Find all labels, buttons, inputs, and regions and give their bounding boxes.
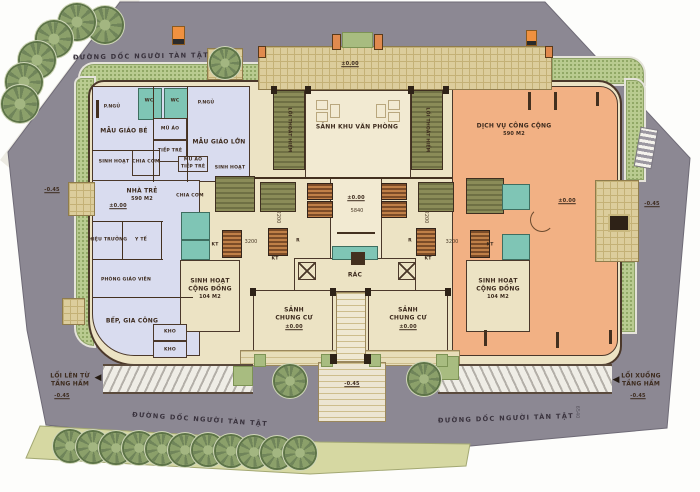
tree-icon <box>409 364 439 394</box>
community-right-line2: CỘNG ĐỒNG <box>476 287 519 294</box>
zone-label-kindergarten-small: MẪU GIÁO BÉ <box>100 129 147 136</box>
room-label-riser-2: R <box>408 238 412 243</box>
skylight-box <box>398 262 416 280</box>
elevator-left-a <box>307 183 333 200</box>
dim-6540-road: 6540 <box>573 406 579 419</box>
vehicle-icon <box>526 30 537 46</box>
lobby-right-line2: CHUNG CƯ <box>389 316 426 323</box>
column-mark <box>330 354 337 364</box>
furniture <box>376 104 386 118</box>
room-label-kitchen: BẾP, GIA CÔNG <box>106 319 158 326</box>
plaza-column <box>545 46 553 58</box>
plaza-column <box>332 34 341 50</box>
dim-3200-left: 3200 <box>245 240 258 246</box>
core-wall <box>250 177 452 179</box>
entry-plaza-top <box>258 46 552 90</box>
room-label-storage-1: KHO <box>164 329 176 334</box>
basement-ramp-left <box>103 364 253 394</box>
furniture <box>330 104 340 118</box>
level-bottom-walk: -0.45 <box>344 382 359 388</box>
arrow-left-icon: ◀ <box>612 375 619 385</box>
column-mark <box>271 86 277 94</box>
room-label-wc-2: WC <box>171 98 180 103</box>
stair-core-left <box>260 182 296 212</box>
stair-right-wing <box>466 178 504 214</box>
column-mark <box>250 288 256 296</box>
tree-icon <box>275 366 305 396</box>
column-mark <box>364 354 371 364</box>
level-corridor: ±0.00 <box>347 196 365 202</box>
green-planter <box>436 354 448 367</box>
community-right-line1: SINH HOẠT <box>478 279 517 286</box>
wall-stub <box>528 92 531 110</box>
elevator-right-b <box>381 201 407 218</box>
tree-icon <box>3 87 37 121</box>
community-left-line1: SINH HOẠT <box>190 279 229 286</box>
lobby-right-level: ±0.00 <box>399 325 417 331</box>
service-elevator-1 <box>222 230 242 258</box>
column-mark <box>365 288 371 296</box>
furniture <box>316 100 328 110</box>
wall-stub <box>96 100 99 118</box>
room-label-meal-1: CHIA CƠM <box>132 159 160 164</box>
zone-label-nursery-area: 590 M2 <box>131 197 153 203</box>
wall-stub <box>596 92 599 106</box>
green-planter <box>254 354 266 367</box>
wall <box>92 150 153 151</box>
wall-stub <box>554 92 557 110</box>
lobby-left-level: ±0.00 <box>285 325 303 331</box>
room-label-bedroom-2: P.NGỦ <box>198 100 215 105</box>
furniture <box>388 112 400 122</box>
room-label-bedroom-1: P.NGỦ <box>104 104 121 109</box>
wc-core-left-a <box>181 212 210 240</box>
room-label-riser-1: R <box>296 238 300 243</box>
wall-stub <box>556 332 559 348</box>
wc-core-right-a <box>502 184 530 210</box>
wall-stub <box>609 330 612 344</box>
zone-label-public-service-area: 590 M2 <box>503 132 525 138</box>
service-elevator-3 <box>416 228 436 256</box>
zone-label-escape-right: LỐI THOÁT HIỂM <box>424 108 429 153</box>
vehicle-icon <box>172 26 185 45</box>
dim-2200-left: 2200 <box>274 211 280 224</box>
basement-up-level: -0.45 <box>54 394 69 400</box>
green-patch <box>233 366 253 386</box>
central-walk-lower <box>318 362 386 422</box>
plaza-column <box>258 46 266 58</box>
column-mark <box>445 288 451 296</box>
wall <box>161 222 162 260</box>
column-mark <box>305 86 311 94</box>
wall <box>93 259 163 260</box>
dim-2200-right: 2200 <box>422 211 428 224</box>
level-nursery: ±0.00 <box>109 204 127 210</box>
lobby-bench <box>337 232 375 234</box>
room-label-hats: MŨ ÁO <box>161 126 179 131</box>
left-edge-planter <box>68 182 95 216</box>
room-label-hats-reception-a: MŨ ÁO <box>184 157 202 162</box>
wc-room-2 <box>164 88 188 120</box>
room-label-medical: Y TẾ <box>135 237 147 242</box>
trash-chute <box>351 252 365 265</box>
room-label-kt-1: KT <box>211 242 218 247</box>
tree-icon <box>285 438 315 468</box>
wall <box>93 221 163 222</box>
elevator-left-b <box>307 201 333 218</box>
column-mark <box>443 86 449 94</box>
room-label-principal: HIỆU TRƯỞNG <box>89 237 127 242</box>
room-label-kt-2: KT <box>271 256 278 261</box>
room-label-hats-reception-b: TIẾP TRẺ <box>181 164 205 169</box>
basement-up-line2: TẦNG HẦM <box>51 382 89 389</box>
basement-down-line2: TẦNG HẦM <box>622 382 660 389</box>
level-right-plaza: -0.45 <box>644 202 659 208</box>
zone-label-public-service: DỊCH VỤ CÔNG CỘNG <box>477 124 552 131</box>
elevator-right-a <box>381 183 407 200</box>
wall-stub <box>484 330 487 346</box>
plaza-feature <box>608 214 630 232</box>
room-label-kt-3: KT <box>424 256 431 261</box>
wc-core-left-b <box>181 240 210 260</box>
room-label-storage-2: KHO <box>164 347 176 352</box>
column-mark <box>408 86 414 94</box>
room-label-child-reception: TIẾP TRẺ <box>158 148 182 153</box>
wc-room-1 <box>138 88 162 120</box>
furniture <box>316 112 328 122</box>
basement-down-level: -0.45 <box>630 394 645 400</box>
level-left-sidewalk: -0.45 <box>44 188 59 194</box>
stair-left-wing <box>215 176 255 212</box>
wall <box>93 297 193 298</box>
tree-icon <box>211 49 239 77</box>
zone-label-office-lobby: SẢNH KHU VĂN PHÒNG <box>316 125 398 132</box>
community-right-area: 104 M2 <box>487 295 509 301</box>
plaza-column <box>374 34 383 50</box>
room-label-kt-4: KT <box>486 242 493 247</box>
door-swing <box>530 208 554 232</box>
room-label-wc-1: WC <box>145 98 154 103</box>
community-left-line2: CỘNG ĐỒNG <box>188 287 231 294</box>
lobby-left-line2: CHUNG CƯ <box>275 316 312 323</box>
green-band-right-lower <box>620 262 635 332</box>
zone-label-escape-left: LỐI THOÁT HIỂM <box>286 108 291 153</box>
community-left-area: 104 M2 <box>199 295 221 301</box>
furniture <box>388 100 400 110</box>
plaza-planter <box>342 32 373 48</box>
room-label-activity-2: SINH HOẠT <box>215 165 246 170</box>
zone-label-kindergarten-large: MẪU GIÁO LỚN <box>192 140 245 147</box>
basement-down-line1: LỐI XUỐNG <box>621 374 661 381</box>
wc-core-right-b <box>502 234 530 260</box>
room-label-meal-2: CHIA CƠM <box>176 193 204 198</box>
level-service: ±0.00 <box>558 199 576 205</box>
dim-3200-right: 3200 <box>446 240 459 246</box>
left-edge-planter <box>62 298 85 325</box>
zone-label-nursery: NHÀ TRẺ <box>127 189 158 196</box>
room-label-activity-1: SINH HOẠT <box>99 159 130 164</box>
central-walk-upper <box>336 292 366 362</box>
skylight-box <box>298 262 316 280</box>
service-elevator-2 <box>268 228 288 256</box>
basement-up-line1: LỐI LÊN TỪ <box>50 374 89 381</box>
dim-5840-center: 5840 <box>351 209 364 215</box>
room-label-teachers: PHÒNG GIÁO VIÊN <box>101 277 151 282</box>
column-mark <box>330 288 336 296</box>
lobby-left-line1: SẢNH <box>284 308 304 315</box>
basement-ramp-right <box>438 364 612 394</box>
lobby-right-line1: SẢNH <box>398 308 418 315</box>
stair-core-right <box>418 182 454 212</box>
zone-label-trash: RÁC <box>348 273 362 280</box>
level-plaza-top: ±0.00 <box>341 62 359 68</box>
arrow-left-icon: ◀ <box>94 373 101 383</box>
site-plan: ĐƯỜNG DỐC NGƯỜI TÀN TẬT ĐƯỜNG DỐC NGƯỜI … <box>0 0 700 492</box>
